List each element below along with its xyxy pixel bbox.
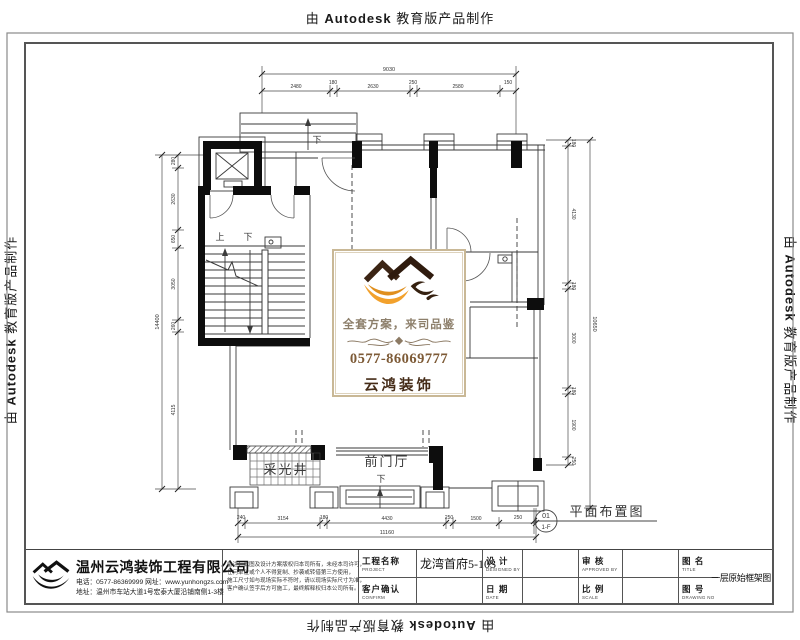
- foyer-label: 前门厅: [364, 454, 409, 469]
- svg-text:1900: 1900: [570, 419, 576, 430]
- dimension-text-bottom: 11160 240 3154 180 4430 250 1500 250: [237, 515, 523, 536]
- svg-text:3050: 3050: [171, 278, 177, 289]
- designer-value: [523, 550, 578, 577]
- company-phone-line: 电话：0577-86369999 网址：www.yunhongzs.com: [76, 577, 213, 587]
- note-line: 备注：此图及设计方案版权归本司所有，未经本司许可，: [227, 561, 344, 568]
- dimension-text-top: 9030 2480 180 2630 250 2580 150: [290, 67, 512, 90]
- company-logo-box: 全套方案，来司品鉴 0577-86069777 云鸿装饰: [332, 249, 466, 397]
- svg-text:180: 180: [320, 515, 329, 521]
- approved-value: [623, 550, 678, 577]
- marker-sheet: 1-F: [542, 525, 551, 531]
- svg-text:4130: 4130: [570, 208, 576, 219]
- svg-text:2480: 2480: [290, 84, 301, 90]
- drawing-name-value: 一层原始框架图: [712, 550, 770, 604]
- drawing-sheet: { "stamp": { "prefix": "由", "brand": "Au…: [0, 0, 800, 640]
- svg-text:180: 180: [570, 282, 576, 291]
- svg-text:2580: 2580: [452, 84, 463, 90]
- field-values-project-confirm: 龙湾首府5-103: [416, 550, 482, 604]
- field-values-approved-scale: [622, 550, 678, 604]
- company-cell: 温州云鸿装饰工程有限公司 电话：0577-86369999 网址：www.yun…: [26, 550, 222, 604]
- lightwell-label: 采光井: [263, 462, 308, 477]
- svg-text:3000: 3000: [570, 332, 576, 343]
- marker-number: 01: [542, 513, 550, 520]
- company-logo-icon: [29, 560, 73, 594]
- note-line: 施工尺寸如与现场实际不符时，请以现场实际尺寸为准，: [227, 577, 344, 584]
- svg-text:1500: 1500: [470, 516, 481, 522]
- drawing-title-marker: 01 1-F 平面布置图: [531, 504, 657, 534]
- company-address-line: 地址：温州市车站大道1号宏泰大厦沿铺南侧1-3楼: [76, 587, 213, 597]
- date-value: [523, 577, 578, 604]
- svg-text:250: 250: [409, 80, 418, 86]
- title-block: 温州云鸿装饰工程有限公司 电话：0577-86369999 网址：www.yun…: [26, 549, 772, 604]
- svg-text:180: 180: [329, 80, 338, 86]
- svg-text:3154: 3154: [277, 516, 288, 522]
- svg-text:240: 240: [237, 515, 246, 521]
- svg-text:260: 260: [171, 322, 177, 331]
- svg-text:650: 650: [171, 235, 177, 244]
- scale-value: [623, 577, 678, 604]
- logo-phone: 0577-86069777: [350, 351, 448, 368]
- svg-text:4430: 4430: [381, 516, 392, 522]
- svg-text:14400: 14400: [155, 314, 161, 329]
- svg-text:9030: 9030: [383, 67, 395, 73]
- field-labels-project-confirm: 工程名称PROJECT 客户确认CONFIRM: [358, 550, 416, 604]
- svg-text:280: 280: [171, 157, 177, 166]
- stair-down-label: 下: [243, 232, 252, 242]
- drawing-title-text: 平面布置图: [569, 504, 644, 519]
- svg-text:250: 250: [514, 515, 523, 521]
- svg-text:250: 250: [570, 457, 576, 466]
- svg-text:250: 250: [445, 515, 454, 521]
- svg-text:11160: 11160: [380, 530, 394, 536]
- ornament-flourish-icon: [343, 334, 455, 348]
- svg-text:4115: 4115: [171, 404, 177, 415]
- dimension-text-right: 10650 180 4130 180 3000 180 1900 250: [570, 139, 597, 466]
- svg-text:180: 180: [570, 387, 576, 396]
- svg-text:180: 180: [570, 139, 576, 148]
- logo-brand-name: 云鸿装饰: [364, 374, 434, 395]
- dimension-text-left: 14400 280 2630 650 3050 260 4115: [155, 157, 177, 416]
- balcony-down-label: 下: [312, 135, 321, 145]
- stair-up-label: 上: [215, 232, 224, 242]
- svg-text:10650: 10650: [591, 316, 597, 331]
- foyer-down-label: 下: [376, 474, 385, 484]
- note-line: 任何单位或个人不得复制、抄袭或转借第三方使用，: [227, 569, 344, 576]
- svg-text:150: 150: [504, 80, 513, 86]
- field-labels-designer-date: 设 计DESIGNED BY 日 期DATE: [482, 550, 522, 604]
- field-labels-title-number: 图 名TITLE 图 号DRAWING NO: [678, 550, 712, 604]
- lightwell-window-band: [247, 446, 311, 453]
- svg-text:2630: 2630: [367, 84, 378, 90]
- note-line: 客户确认签字后方可施工，最终解释权归本公司所有。: [227, 585, 344, 592]
- logo-slogan: 全套方案，来司品鉴: [343, 316, 456, 332]
- field-values-designer-date: [522, 550, 578, 604]
- roof-bird-logo-icon: [351, 255, 447, 315]
- notes-cell: 备注：此图及设计方案版权归本司所有，未经本司许可， 任何单位或个人不得复制、抄袭…: [222, 550, 358, 604]
- field-labels-approved-scale: 审 核APPROVED BY 比 例SCALE: [578, 550, 622, 604]
- svg-text:2630: 2630: [171, 193, 177, 204]
- company-name: 温州云鸿装饰工程有限公司: [76, 557, 219, 577]
